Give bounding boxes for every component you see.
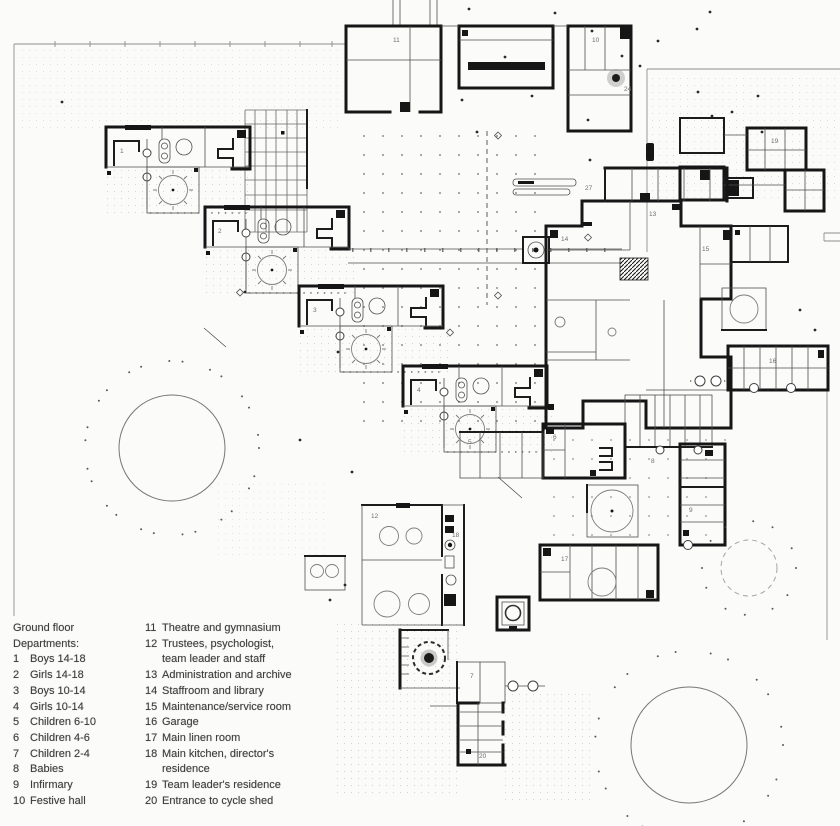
planting-dot: [241, 395, 243, 397]
planting-dot: [710, 540, 712, 542]
legend-item-number: 4: [13, 700, 30, 716]
legend-item: 1Boys 14-18: [13, 652, 143, 668]
legend-item: 8Babies: [13, 762, 143, 778]
planting-dot: [253, 475, 255, 477]
planting-dot: [605, 788, 607, 790]
legend-item-number: 1: [13, 652, 30, 668]
planting-dot: [626, 673, 628, 675]
legend-item-label: Girls 14-18: [30, 668, 84, 684]
legend-item-label: Team leader's residence: [162, 778, 281, 794]
planting-dot: [153, 532, 155, 534]
legend-item-label: Maintenance/service room: [162, 700, 291, 716]
tree-dot: [554, 12, 557, 15]
tree-dot: [337, 351, 340, 354]
tree-dot: [711, 115, 714, 118]
tree-dot: [344, 584, 347, 587]
legend-item: residence: [145, 762, 315, 778]
legend-item-label: Infirmary: [30, 778, 73, 794]
planting-dot: [248, 487, 250, 489]
planting-dot: [743, 820, 745, 822]
planting-dot: [772, 526, 774, 528]
plan-number-label: 14: [561, 236, 569, 243]
planting-dot: [725, 608, 727, 610]
planting-dot: [756, 679, 758, 681]
tree-dot: [799, 309, 802, 312]
planting-dot: [725, 526, 727, 528]
tree-dot: [621, 55, 624, 58]
legend-item: 3Boys 10-14: [13, 684, 143, 700]
legend-item: 13Administration and archive: [145, 668, 315, 684]
tree-dot: [761, 131, 764, 134]
legend-item-label: Children 2-4: [30, 747, 90, 763]
legend-item-number: 10: [13, 794, 30, 810]
tree-dot: [657, 40, 660, 43]
legend-item-label: Children 4-6: [30, 731, 90, 747]
planting-dot: [220, 375, 222, 377]
planting-dot: [705, 587, 707, 589]
tree-dot: [639, 65, 642, 68]
planting-dot: [614, 686, 616, 688]
planting-dot: [772, 608, 774, 610]
planting-dot: [767, 693, 769, 695]
planting-dot: [780, 726, 782, 728]
plan-number-label: 19: [771, 138, 779, 145]
legend-item-label: Children 6-10: [30, 715, 96, 731]
tree-dot: [504, 56, 507, 59]
plan-number-label: 10: [592, 37, 600, 44]
legend-item-number: 17: [145, 731, 162, 747]
tree-dot: [591, 30, 594, 33]
tree-dot: [476, 131, 479, 134]
planting-dot: [767, 795, 769, 797]
tree-dot: [587, 119, 590, 122]
planting-dot: [231, 510, 233, 512]
legend-item-label: Main kitchen, director's: [162, 747, 274, 763]
tree-dot: [531, 95, 534, 98]
plan-number-label: 15: [702, 246, 710, 253]
legend-item-number: 14: [145, 684, 162, 700]
plan-number-label: 6: [553, 434, 557, 441]
planting-dot: [782, 744, 784, 746]
legend-item-label: Boys 14-18: [30, 652, 86, 668]
planting-dot: [701, 567, 703, 569]
legend-item-number: 12: [145, 637, 162, 653]
plan-number-label: 13: [649, 211, 657, 218]
planting-dot: [182, 361, 184, 363]
legend-item: 10Festive hall: [13, 794, 143, 810]
legend-item-number: 16: [145, 715, 162, 731]
legend-item-number: 5: [13, 715, 30, 731]
tree-dot: [731, 111, 734, 114]
legend-column-departments-11-20: 11Theatre and gymnasium12Trustees, psych…: [145, 621, 315, 809]
tree-canopy-circle: [631, 687, 747, 803]
legend-item-number: 20: [145, 794, 162, 810]
planting-dot: [786, 594, 788, 596]
tree-canopy-circle: [119, 395, 225, 501]
tree-dot: [61, 101, 64, 104]
legend-item: 11Theatre and gymnasium: [145, 621, 315, 637]
legend-item: 4Girls 10-14: [13, 700, 143, 716]
plan-number-label: 7: [470, 673, 474, 680]
planting-dot: [258, 447, 260, 449]
legend-item-number: 6: [13, 731, 30, 747]
planting-dot: [675, 651, 677, 653]
legend-item-number: 15: [145, 700, 162, 716]
planting-dot: [128, 371, 130, 373]
legend-item-label: Boys 10-14: [30, 684, 86, 700]
planting-dot: [598, 771, 600, 773]
planting-dot: [744, 614, 746, 616]
planting-dot: [106, 389, 108, 391]
tree-dot: [468, 8, 471, 11]
legend-item-number: 2: [13, 668, 30, 684]
legend-item: 7Children 2-4: [13, 747, 143, 763]
planting-dot: [220, 519, 222, 521]
legend-item-label: Babies: [30, 762, 64, 778]
planting-dot: [657, 655, 659, 657]
tree-dot: [814, 329, 817, 332]
legend-item-label: Theatre and gymnasium: [162, 621, 281, 637]
legend-item-label: Festive hall: [30, 794, 86, 810]
tree-dot: [696, 28, 699, 31]
tree-symbol: [612, 74, 620, 82]
planting-dot: [87, 468, 89, 470]
legend-column-departments-1-10: Ground floor Departments: 1Boys 14-182Gi…: [13, 621, 143, 809]
plan-number-label: 24: [624, 86, 632, 93]
plan-number-label: 20: [479, 753, 487, 760]
plan-number-label: 8: [651, 458, 655, 465]
planting-dot: [182, 533, 184, 535]
planting-dot: [140, 528, 142, 530]
legend-item: 9Infirmary: [13, 778, 143, 794]
plan-number-label: 11: [393, 37, 400, 44]
plan-number-label: 16: [769, 358, 777, 365]
plan-number-label: 27: [585, 185, 593, 192]
planting-dot: [84, 439, 86, 441]
planting-dot: [795, 567, 797, 569]
legend-item-number: 9: [13, 778, 30, 794]
legend-item: 12Trustees, psychologist,: [145, 637, 315, 653]
legend-item-number: 19: [145, 778, 162, 794]
legend-item: 6Children 4-6: [13, 731, 143, 747]
legend-item: team leader and staff: [145, 652, 315, 668]
legend-item-label: Administration and archive: [162, 668, 292, 684]
legend-item: 20Entrance to cycle shed: [145, 794, 315, 810]
planting-dot: [598, 718, 600, 720]
plan-number-label: 18: [452, 532, 460, 539]
plan-number-label: 12: [371, 513, 379, 520]
tree-dot: [244, 291, 247, 294]
legend-item-label: Garage: [162, 715, 199, 731]
tree-dot: [697, 91, 700, 94]
legend-item: 19Team leader's residence: [145, 778, 315, 794]
planting-dot: [140, 366, 142, 368]
planting-dot: [87, 426, 89, 428]
tree-canopy-circle: [721, 540, 777, 596]
planting-dot: [115, 514, 117, 516]
legend-item-number: 11: [145, 621, 162, 637]
legend-item: 17Main linen room: [145, 731, 315, 747]
legend-item: 16Garage: [145, 715, 315, 731]
legend-item: 18Main kitchen, director's: [145, 747, 315, 763]
planting-dot: [710, 653, 712, 655]
legend-item-number: 7: [13, 747, 30, 763]
planting-dot: [594, 736, 596, 738]
planting-dot: [209, 369, 211, 371]
tree-dot: [709, 11, 712, 14]
legend-item-number: 8: [13, 762, 30, 778]
legend-item-label: Girls 10-14: [30, 700, 84, 716]
legend-item-label: Staffroom and library: [162, 684, 264, 700]
plan-number-label: 9: [689, 507, 693, 514]
tree-dot: [757, 95, 760, 98]
legend-item-number: 13: [145, 668, 162, 684]
legend-item-label: Trustees, psychologist,: [162, 637, 274, 653]
tree-dot: [351, 471, 354, 474]
planting-dot: [106, 505, 108, 507]
plan-number-label: 5: [468, 439, 472, 446]
planting-dot: [194, 531, 196, 533]
planting-dot: [168, 360, 170, 362]
planting-dot: [752, 520, 754, 522]
planting-dot: [626, 815, 628, 817]
legend-item-number: 18: [145, 747, 162, 763]
planting-dot: [248, 407, 250, 409]
legend-item: 15Maintenance/service room: [145, 700, 315, 716]
plan-number-label: 1: [120, 148, 124, 155]
planting-dot: [791, 547, 793, 549]
legend-item: 5Children 6-10: [13, 715, 143, 731]
plan-number-label: 4: [417, 387, 421, 394]
tree-dot: [589, 159, 592, 162]
tree-dot: [329, 599, 332, 602]
plan-number-label: 17: [561, 556, 569, 563]
tree-dot: [299, 439, 302, 442]
legend-item: 2Girls 14-18: [13, 668, 143, 684]
legend-item: 14Staffroom and library: [145, 684, 315, 700]
legend-item-number: 3: [13, 684, 30, 700]
legend-item-label: Main linen room: [162, 731, 240, 747]
planting-dot: [98, 400, 100, 402]
legend-title: Ground floor Departments:: [13, 621, 143, 652]
scanned-floor-plan-page: 12345678910111213141516171819202724 Grou…: [0, 0, 840, 826]
planting-dot: [91, 480, 93, 482]
planting-dot: [257, 434, 259, 436]
plan-number-label: 3: [313, 307, 317, 314]
tree-dot: [461, 99, 464, 102]
planting-dot: [727, 659, 729, 661]
plan-number-label: 2: [218, 228, 222, 235]
planting-dot: [775, 779, 777, 781]
legend-item-label: Entrance to cycle shed: [162, 794, 273, 810]
